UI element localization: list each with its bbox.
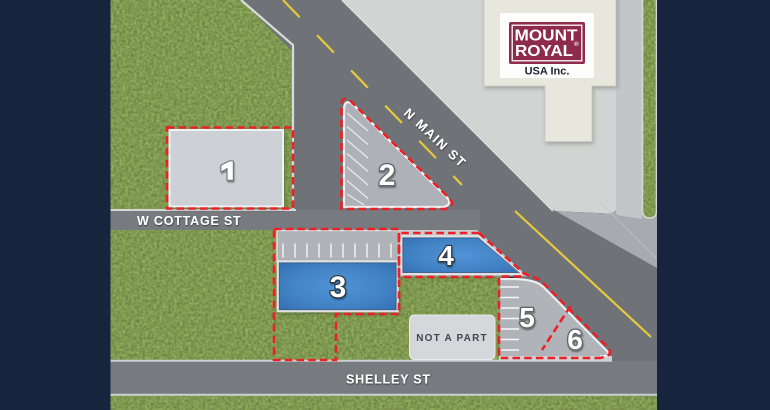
svg-text:4: 4 bbox=[438, 240, 454, 271]
svg-text:6: 6 bbox=[567, 324, 583, 355]
svg-text:ROYAL: ROYAL bbox=[515, 43, 573, 60]
svg-text:MOUNT: MOUNT bbox=[515, 28, 579, 45]
svg-text:USA Inc.: USA Inc. bbox=[525, 66, 570, 78]
svg-text:NOT A PART: NOT A PART bbox=[416, 333, 488, 344]
svg-text:5: 5 bbox=[519, 302, 535, 333]
svg-text:SHELLEY ST: SHELLEY ST bbox=[346, 373, 431, 387]
svg-text:W COTTAGE ST: W COTTAGE ST bbox=[137, 214, 242, 228]
svg-text:3: 3 bbox=[330, 271, 347, 304]
svg-text:®: ® bbox=[574, 40, 579, 48]
svg-text:2: 2 bbox=[379, 159, 396, 192]
